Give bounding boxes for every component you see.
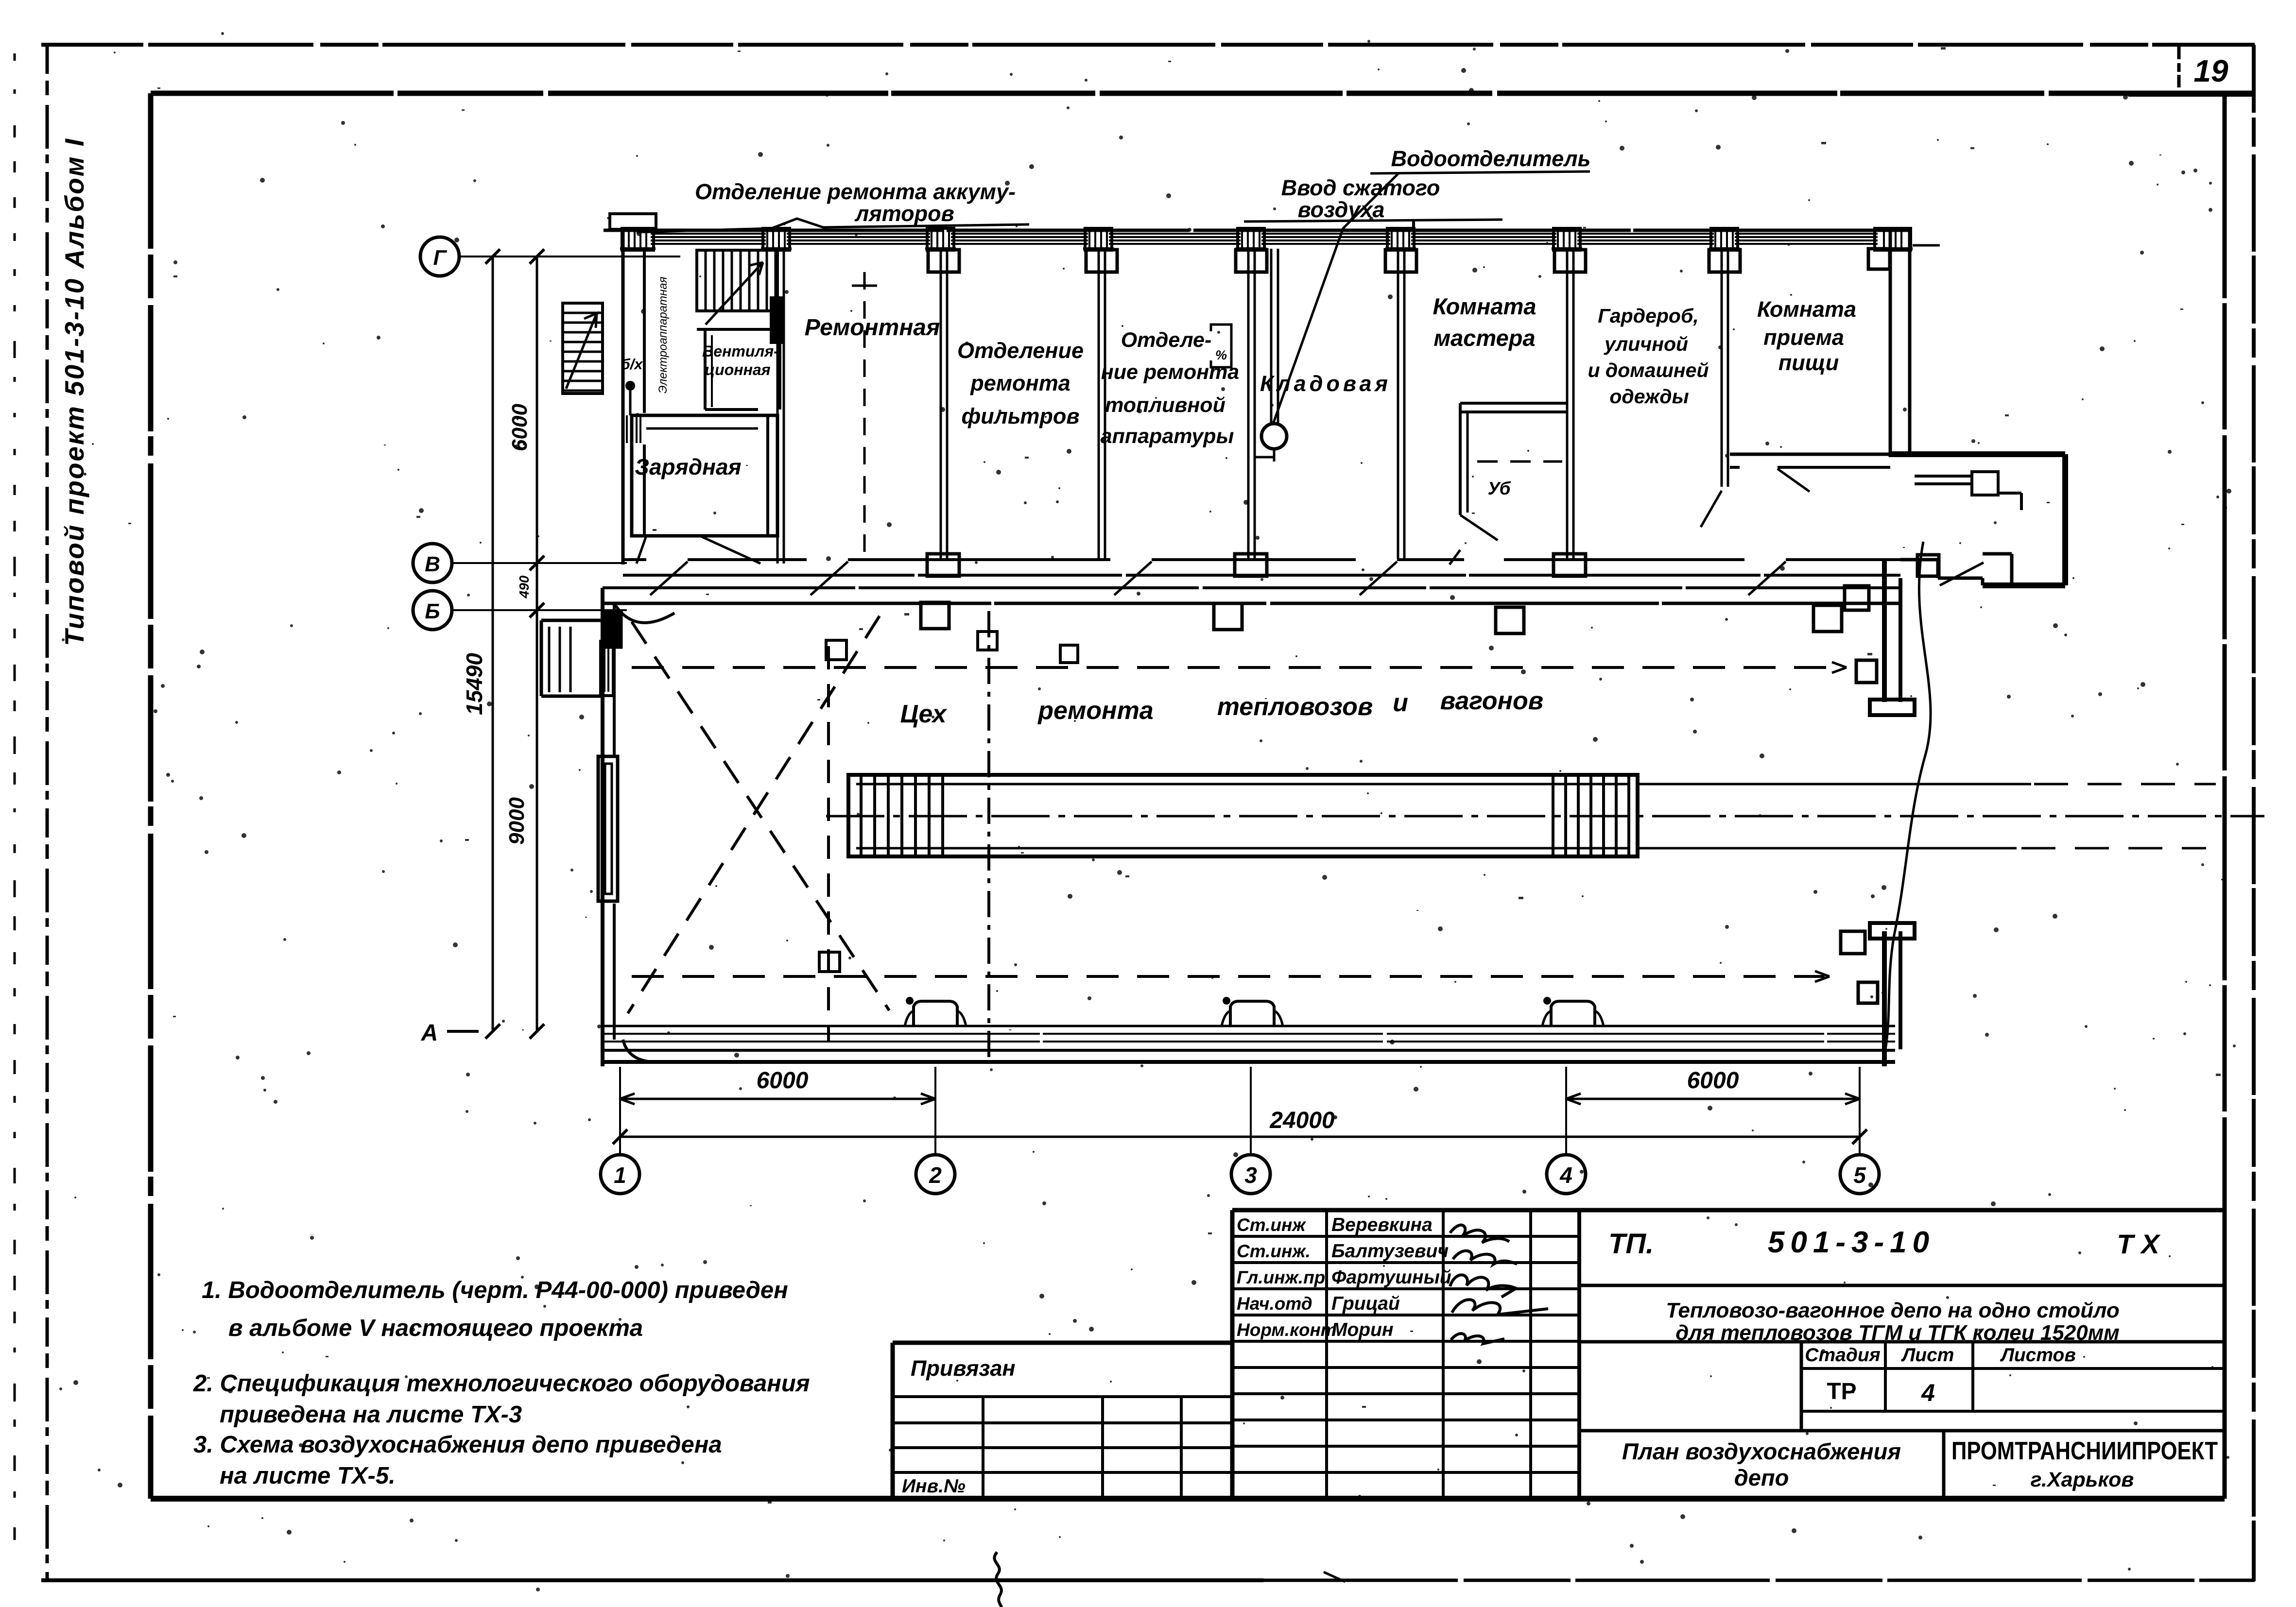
svg-text:Вентиля-: Вентиля- — [702, 342, 779, 360]
svg-text:в альбоме V настоящего проекта: в альбоме V настоящего проекта — [228, 1315, 643, 1341]
svg-text:фильтров: фильтров — [961, 404, 1079, 428]
svg-text:вагонов: вагонов — [1440, 687, 1543, 715]
svg-text:1. Водоотделитель (черт. Р44-0: 1. Водоотделитель (черт. Р44-00-000) при… — [202, 1277, 788, 1303]
svg-text:Отделение ремонта аккуму-: Отделение ремонта аккуму- — [695, 179, 1016, 204]
svg-text:501-3-10: 501-3-10 — [1768, 1226, 1935, 1259]
svg-text:Нач.отд: Нач.отд — [1237, 1294, 1312, 1314]
svg-text:на листе ТХ-5.: на листе ТХ-5. — [220, 1463, 396, 1489]
svg-text:Типовой проект 501-3-10 Альбом: Типовой проект 501-3-10 Альбом I — [59, 137, 89, 646]
svg-text:пищи: пищи — [1778, 350, 1839, 375]
svg-text:Гардероб,: Гардероб, — [1598, 305, 1698, 327]
svg-text:Фартушный: Фартушный — [1331, 1267, 1451, 1288]
svg-text:топливной: топливной — [1105, 393, 1226, 417]
svg-text:Отделение: Отделение — [957, 338, 1084, 363]
svg-text:депо: депо — [1734, 1465, 1789, 1490]
svg-text:Уб: Уб — [1487, 479, 1511, 498]
svg-text:Ремонтная: Ремонтная — [805, 315, 940, 341]
svg-text:19: 19 — [2193, 53, 2228, 88]
svg-text:Комната: Комната — [1433, 293, 1536, 319]
svg-text:6000: 6000 — [1687, 1068, 1739, 1094]
svg-text:Тепловозо-вагонное депо на одн: Тепловозо-вагонное депо на одно стойло — [1666, 1299, 2120, 1322]
svg-text:ляторов: ляторов — [854, 201, 954, 226]
svg-text:Инв.№: Инв.№ — [902, 1476, 966, 1497]
svg-text:3: 3 — [1244, 1163, 1257, 1188]
svg-text:аппаратуры: аппаратуры — [1101, 425, 1234, 448]
svg-text:%: % — [1215, 348, 1227, 362]
svg-text:и домашней: и домашней — [1588, 359, 1709, 381]
svg-text:Балтузевич: Балтузевич — [1331, 1241, 1449, 1262]
svg-text:1: 1 — [614, 1163, 626, 1188]
svg-text:ПРОМТРАНСНИИПРОЕКТ: ПРОМТРАНСНИИПРОЕКТ — [1951, 1437, 2218, 1465]
svg-text:План воздухоснабжения: План воздухоснабжения — [1622, 1438, 1901, 1464]
svg-text:Стадия: Стадия — [1805, 1345, 1880, 1366]
svg-text:ремонта: ремонта — [970, 371, 1070, 395]
svg-text:Цех: Цех — [900, 700, 947, 728]
svg-text:уличной: уличной — [1604, 333, 1688, 355]
svg-text:Б: Б — [425, 599, 440, 623]
svg-text:6000: 6000 — [508, 404, 532, 451]
svg-text:б/х: б/х — [621, 356, 643, 373]
svg-text:490: 490 — [517, 575, 532, 598]
svg-text:Комната: Комната — [1757, 297, 1856, 322]
svg-text:15490: 15490 — [462, 653, 487, 715]
svg-text:Ввод сжатого: Ввод сжатого — [1281, 175, 1440, 200]
svg-text:В: В — [425, 552, 440, 576]
svg-text:ТР: ТР — [1827, 1379, 1856, 1404]
svg-text:Привязан: Привязан — [911, 1356, 1016, 1381]
svg-text:4: 4 — [1921, 1379, 1935, 1406]
svg-text:6000: 6000 — [757, 1068, 809, 1094]
svg-text:3. Схема воздухоснабжения депо: 3. Схема воздухоснабжения депо приведена — [193, 1432, 722, 1458]
svg-text:и: и — [1393, 689, 1408, 717]
svg-text:г.Харьков: г.Харьков — [2031, 1468, 2134, 1491]
svg-text:Отделе-: Отделе- — [1121, 328, 1212, 352]
svg-text:приема: приема — [1763, 325, 1844, 350]
svg-text:Электроаппаратная: Электроаппаратная — [656, 276, 670, 393]
svg-text:9000: 9000 — [505, 797, 529, 845]
svg-text:ТХ: ТХ — [2117, 1229, 2167, 1259]
svg-text:Морин: Морин — [1331, 1319, 1394, 1340]
svg-text:Ст.инж.: Ст.инж. — [1237, 1241, 1311, 1261]
svg-text:Г: Г — [433, 246, 447, 270]
svg-text:мастера: мастера — [1433, 325, 1535, 351]
svg-text:Норм.конт: Норм.конт — [1237, 1320, 1337, 1340]
svg-text:2: 2 — [929, 1163, 942, 1188]
svg-text:Грицай: Грицай — [1331, 1293, 1400, 1314]
svg-text:Гл.инж.пр: Гл.инж.пр — [1237, 1267, 1325, 1287]
svg-text:4: 4 — [1559, 1163, 1572, 1188]
svg-text:для тепловозов ТГМ и ТГК колеи: для тепловозов ТГМ и ТГК колеи 1520мм — [1675, 1321, 2120, 1345]
svg-text:Ст.инж: Ст.инж — [1237, 1215, 1306, 1235]
svg-text:2. Спецификация технологическо: 2. Спецификация технологического оборудо… — [193, 1370, 810, 1397]
svg-text:Зарядная: Зарядная — [635, 454, 741, 479]
svg-text:Листов: Листов — [2000, 1345, 2076, 1366]
svg-text:А: А — [421, 1020, 438, 1046]
svg-text:ремонта: ремонта — [1037, 697, 1153, 725]
svg-text:Кладовая: Кладовая — [1260, 371, 1391, 396]
svg-text:5: 5 — [1853, 1163, 1866, 1188]
svg-text:Веревкина: Веревкина — [1331, 1214, 1433, 1235]
svg-text:приведена на листе ТХ-3: приведена на листе ТХ-3 — [220, 1402, 522, 1428]
svg-text:ние ремонта: ние ремонта — [1101, 360, 1239, 384]
svg-text:Водоотделитель: Водоотделитель — [1391, 146, 1591, 171]
svg-text:Лист: Лист — [1901, 1345, 1954, 1366]
svg-text:тепловозов: тепловозов — [1217, 693, 1373, 721]
svg-text:24000: 24000 — [1269, 1108, 1335, 1133]
svg-text:ТП.: ТП. — [1608, 1228, 1654, 1260]
svg-text:ционная: ционная — [705, 361, 770, 378]
svg-text:одежды: одежды — [1609, 385, 1689, 408]
